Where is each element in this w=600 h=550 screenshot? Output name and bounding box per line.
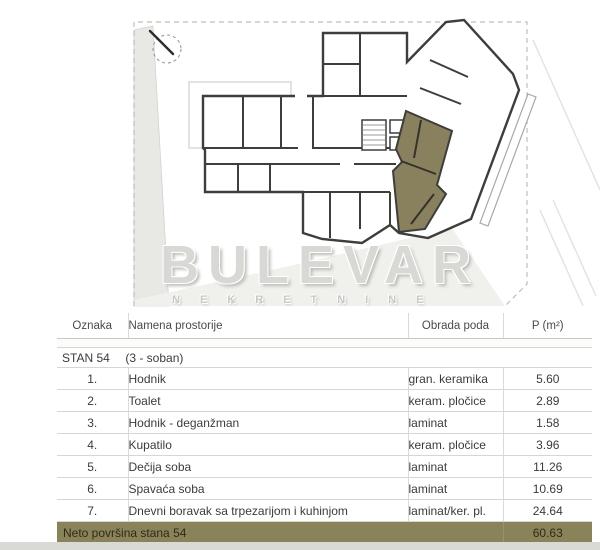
cell-p: 3.96 (503, 434, 592, 456)
section-label: STAN 54 (57, 351, 122, 365)
cell-p: 11.26 (503, 456, 592, 478)
bottom-strip (0, 542, 600, 550)
neighbor-lines (533, 40, 600, 306)
cell-oznaka: 5. (57, 456, 128, 478)
cell-oznaka: 4. (57, 434, 128, 456)
cell-p: 5.60 (503, 368, 592, 390)
floor-plan-drawing (0, 0, 600, 310)
cell-obrada: gran. keramika (408, 368, 503, 390)
total-label: Neto površina stana 54 (57, 522, 503, 545)
room-spec-table: Oznaka Namena prostorije Obrada poda P (… (57, 313, 592, 544)
table-header-row: Oznaka Namena prostorije Obrada poda P (… (57, 313, 592, 339)
cell-obrada: laminat (408, 456, 503, 478)
floor-plan: BULEVAR NEKRETNINE (0, 0, 600, 310)
cell-oznaka: 2. (57, 390, 128, 412)
header-oznaka: Oznaka (57, 313, 128, 339)
section-sublabel: (3 - soban) (125, 351, 183, 365)
cell-obrada: laminat (408, 412, 503, 434)
stairs (362, 120, 386, 150)
cell-oznaka: 1. (57, 368, 128, 390)
cell-p: 2.89 (503, 390, 592, 412)
cell-namena: Toalet (128, 390, 408, 412)
total-row: Neto površina stana 54 60.63 (57, 522, 592, 545)
table-row: 6.Spavaća sobalaminat10.69 (57, 478, 592, 500)
header-namena: Namena prostorije (128, 313, 408, 339)
table-row: 7.Dnevni boravak sa trpezarijom i kuhinj… (57, 500, 592, 522)
cell-obrada: laminat (408, 478, 503, 500)
site-left-wedge (134, 26, 169, 306)
table-row: 1.Hodnikgran. keramika5.60 (57, 368, 592, 390)
cell-namena: Hodnik (128, 368, 408, 390)
cell-namena: Dnevni boravak sa trpezarijom i kuhinjom (128, 500, 408, 522)
cell-p: 10.69 (503, 478, 592, 500)
total-value: 60.63 (503, 522, 592, 545)
table-row: 4.Kupatilokeram. pločice3.96 (57, 434, 592, 456)
header-p: P (m²) (503, 313, 592, 339)
table-body: 1.Hodnikgran. keramika5.602.Toaletkeram.… (57, 368, 592, 522)
cell-oznaka: 3. (57, 412, 128, 434)
cell-obrada: laminat/ker. pl. (408, 500, 503, 522)
cell-namena: Spavaća soba (128, 478, 408, 500)
cell-oznaka: 6. (57, 478, 128, 500)
table-row: 5.Dečija sobalaminat11.26 (57, 456, 592, 478)
cell-obrada: keram. pločice (408, 390, 503, 412)
header-spacer (57, 339, 592, 348)
cell-p: 1.58 (503, 412, 592, 434)
header-obrada: Obrada poda (408, 313, 503, 339)
cell-namena: Dečija soba (128, 456, 408, 478)
table-row: 3.Hodnik - deganžmanlaminat1.58 (57, 412, 592, 434)
site-bottom-band (134, 228, 505, 306)
section-row: STAN 54 (3 - soban) (57, 348, 592, 368)
cell-p: 24.64 (503, 500, 592, 522)
cell-obrada: keram. pločice (408, 434, 503, 456)
table-row: 2.Toaletkeram. pločice2.89 (57, 390, 592, 412)
property-sheet: { "plan": { "watermark_title": "BULEVAR"… (0, 0, 600, 550)
cell-namena: Kupatilo (128, 434, 408, 456)
cell-namena: Hodnik - deganžman (128, 412, 408, 434)
cell-oznaka: 7. (57, 500, 128, 522)
